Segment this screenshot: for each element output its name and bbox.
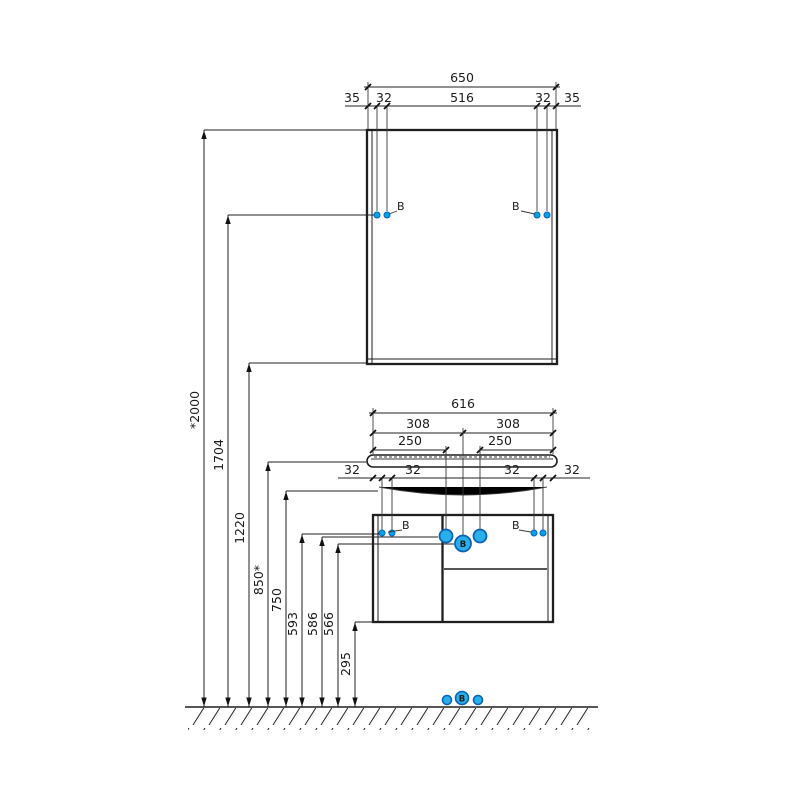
- mount-label-b: B: [402, 519, 410, 532]
- b-leader: [389, 211, 397, 214]
- dim-32-edge-right: 32: [564, 462, 580, 477]
- dim-35-right: 35: [564, 90, 580, 105]
- height-dim-295: 295: [338, 622, 372, 707]
- dim-308-left: 308: [406, 416, 430, 431]
- connection-point-circle: [474, 530, 487, 543]
- height-dim-750: 750: [269, 491, 378, 707]
- washbasin-vanity: B B B: [367, 428, 557, 622]
- dim-308-right: 308: [496, 416, 520, 431]
- connection-point-circle: [443, 696, 452, 705]
- mount-label-b: B: [397, 200, 405, 213]
- dim-35-left: 35: [344, 90, 360, 105]
- dim-32-hole-left: 32: [405, 462, 421, 477]
- mount-label-b: B: [512, 519, 520, 532]
- connection-point-circle: [440, 530, 453, 543]
- dim-295: 295: [338, 652, 353, 676]
- dim-2000: *2000: [187, 391, 202, 429]
- b-leader: [521, 211, 535, 214]
- height-dim-2000: *2000: [187, 130, 366, 707]
- mount-point-dot: [540, 530, 546, 536]
- mirror-top-dimensions: 650 35 32 516 32 35: [344, 70, 581, 129]
- dim-32-left: 32: [376, 90, 392, 105]
- connection-label-b: B: [460, 540, 466, 550]
- dim-1704: 1704: [211, 439, 226, 471]
- mount-point-dot: [534, 212, 540, 218]
- mount-point-dot: [544, 212, 550, 218]
- dim-593: 593: [285, 612, 300, 636]
- dim-516: 516: [450, 90, 474, 105]
- dim-586: 586: [305, 612, 320, 636]
- b-leader: [519, 530, 531, 532]
- mount-point-dot: [374, 212, 380, 218]
- dim-32-hole-right: 32: [504, 462, 520, 477]
- mount-label-b: B: [512, 200, 520, 213]
- mirror-cabinet: B B: [367, 106, 557, 364]
- dim-250-right: 250: [488, 433, 512, 448]
- dim-750: 750: [269, 588, 284, 612]
- dim-250-left: 250: [398, 433, 422, 448]
- vanity-dimensions: 616 308 308 250 250 32 32 32 32: [338, 396, 590, 481]
- dim-1220: 1220: [232, 512, 247, 544]
- dim-616: 616: [451, 396, 475, 411]
- dim-566: 566: [321, 612, 336, 636]
- mount-point-dot: [384, 212, 390, 218]
- mount-point-dot: [531, 530, 537, 536]
- height-dim-566: 566: [321, 544, 454, 707]
- dim-32-edge-left: 32: [344, 462, 360, 477]
- connection-label-b: B: [459, 695, 465, 705]
- dim-32-right: 32: [535, 90, 551, 105]
- installation-drawing: B B 650 35 32 516 32 35 616 308: [0, 0, 800, 800]
- floor-hatching: [188, 708, 590, 730]
- floor-connection-points: B: [443, 692, 483, 705]
- dim-650: 650: [450, 70, 474, 85]
- technical-drawing-page: B B 650 35 32 516 32 35 616 308: [0, 0, 800, 800]
- dim-850: 850*: [251, 565, 266, 595]
- mount-point-dot: [379, 530, 385, 536]
- mirror-outline: [367, 130, 557, 364]
- connection-point-circle: [474, 696, 483, 705]
- floor: [185, 707, 598, 730]
